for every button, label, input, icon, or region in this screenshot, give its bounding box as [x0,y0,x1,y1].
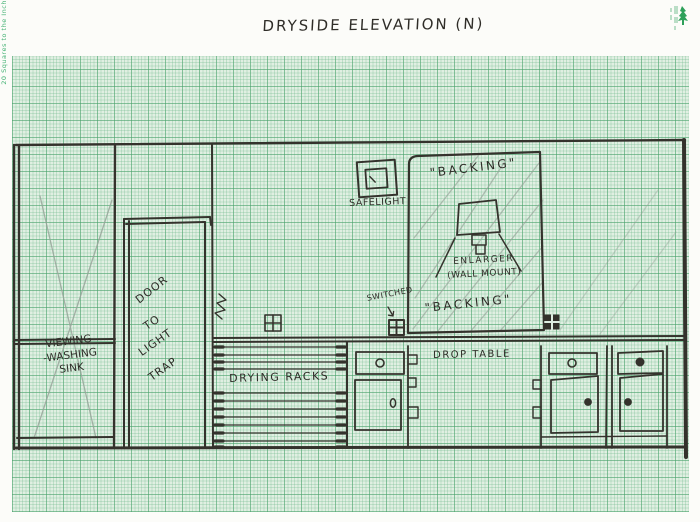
sink-x-mark [34,196,112,438]
leaf-icon [678,6,688,25]
safelight-symbol [357,160,397,198]
paper-brand-logo [668,2,692,40]
drawer-knob [568,359,576,367]
drying-racks-label: DRYING RACKS [229,369,329,385]
drop-table-brackets [533,380,541,418]
outlet-symbol-right [545,315,559,329]
base-cabinet-3 [612,346,667,448]
door-knob [625,399,631,405]
drawing-title: DRYSIDE ELEVATION (N) [262,15,485,35]
drawer-knob [636,358,643,365]
door-handle [390,399,395,407]
door-latch-squiggle [215,294,226,319]
base-cabinet-2 [541,346,667,448]
elevation-line-drawing [0,0,700,522]
safelight-label: SAFELIGHT [349,196,406,209]
drying-racks [215,342,347,448]
base-cabinet-1 [355,346,418,448]
outlet-symbol-left [265,315,281,331]
switched-outlet-symbol [389,320,404,335]
wall-outline [14,140,686,457]
scanned-elevation-sketch: DRYSIDE ELEVATION (N) 20 Squares to the … [0,0,700,522]
counter-line [214,336,686,342]
enlarger-lens [472,235,486,254]
drop-table-label: DROP TABLE [433,349,511,361]
drawer-knob [376,359,384,367]
side-brackets [408,355,418,418]
door-knob [585,399,591,405]
switched-arrow [388,307,394,316]
stray-pencil-lines [560,190,676,334]
enlarger-head [457,200,500,235]
light-trap-door [124,217,226,448]
